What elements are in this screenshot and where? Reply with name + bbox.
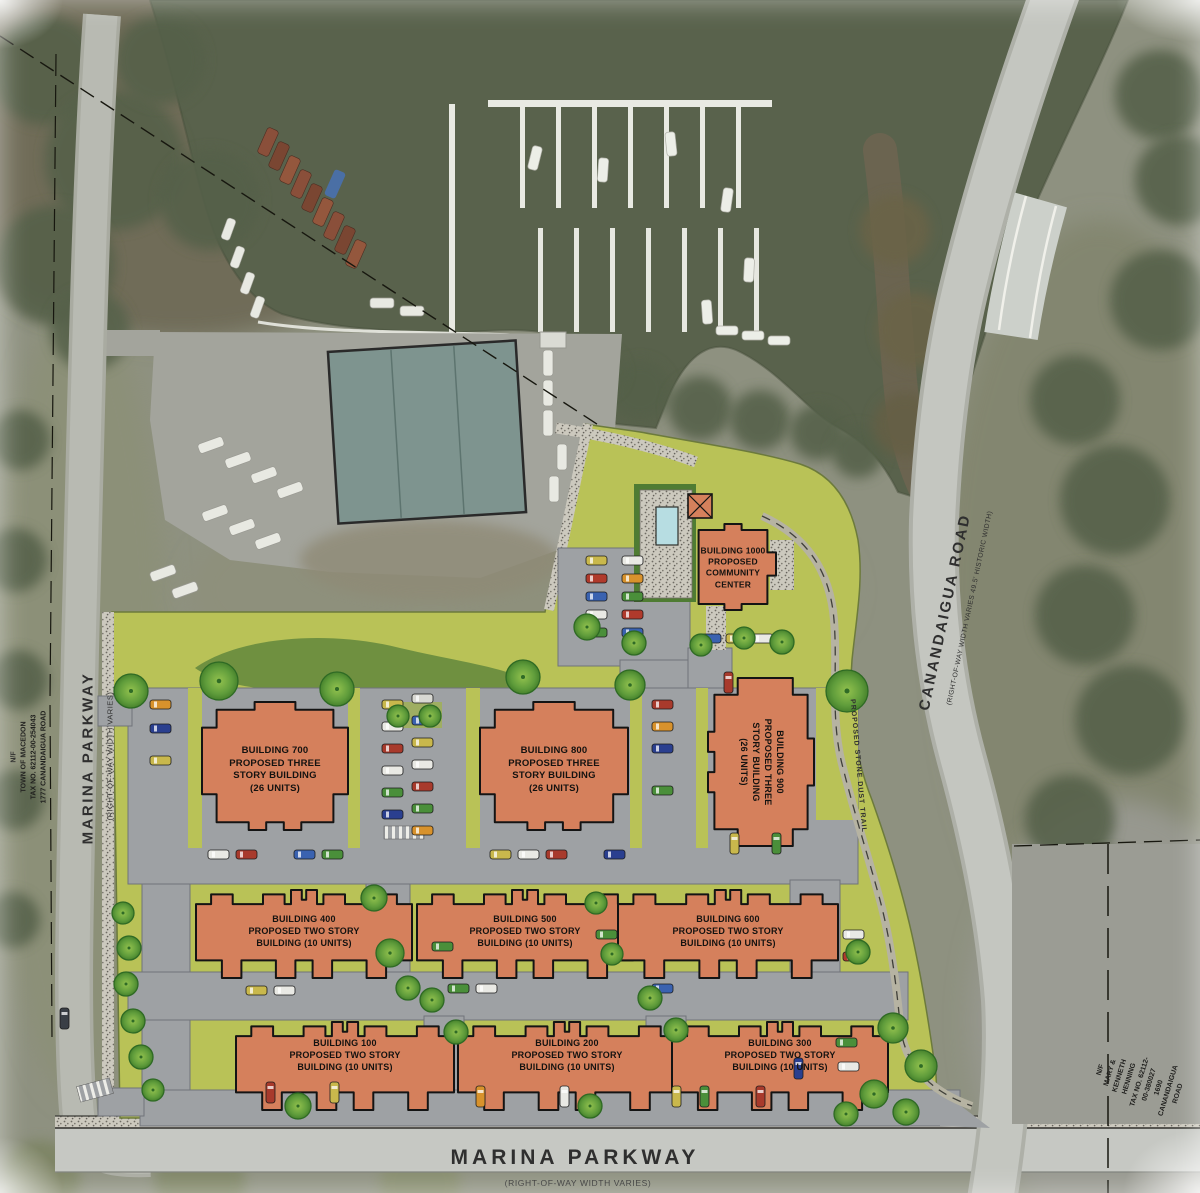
west-curb-wall <box>102 612 114 1118</box>
gravel-area <box>300 520 560 600</box>
east-parcel-field <box>1012 844 1200 1124</box>
shed <box>540 332 566 348</box>
vegetation <box>1060 445 1170 555</box>
parked-car <box>150 724 171 733</box>
parked-car <box>604 850 625 859</box>
vegetation <box>860 195 930 265</box>
vegetation <box>1135 135 1200 225</box>
parked-car <box>60 1008 69 1029</box>
parked-car <box>756 1086 765 1107</box>
parked-car <box>586 592 607 601</box>
building-800 <box>480 702 628 830</box>
parked-car <box>382 810 403 819</box>
bridge-deck <box>1011 200 1041 336</box>
vegetation <box>1115 50 1200 140</box>
swimming-pool <box>656 507 678 545</box>
parked-car <box>622 610 643 619</box>
gazebo <box>688 494 712 518</box>
parked-car <box>322 850 343 859</box>
parked-car <box>150 756 171 765</box>
parked-car <box>622 556 643 565</box>
parked-car <box>652 786 673 795</box>
parked-car <box>794 1058 803 1079</box>
parked-car <box>772 833 781 854</box>
parked-car <box>412 738 433 747</box>
parked-car <box>412 760 433 769</box>
parked-car <box>274 986 295 995</box>
parked-car <box>652 744 673 753</box>
parked-car <box>382 766 403 775</box>
parked-car <box>622 592 643 601</box>
parked-car <box>246 986 267 995</box>
parked-car <box>652 700 673 709</box>
aerial-site-plan-canvas <box>0 0 1200 1193</box>
parked-car <box>838 1062 859 1071</box>
parked-car <box>700 1086 709 1107</box>
parked-car <box>586 556 607 565</box>
parked-car <box>476 984 497 993</box>
parked-car <box>586 574 607 583</box>
parked-car <box>546 850 567 859</box>
vegetation <box>1035 565 1135 665</box>
vegetation <box>668 376 732 440</box>
parked-car <box>294 850 315 859</box>
parked-car <box>382 788 403 797</box>
parked-car <box>208 850 229 859</box>
parked-car <box>412 804 433 813</box>
parked-car <box>266 1082 275 1103</box>
building-1000 <box>699 524 776 610</box>
parked-car <box>432 942 453 951</box>
building-900 <box>708 678 814 846</box>
vegetation <box>730 390 790 450</box>
parked-car <box>412 694 433 703</box>
parked-car <box>596 930 617 939</box>
parked-car <box>476 1086 485 1107</box>
vegetation <box>1030 355 1120 445</box>
parked-car <box>412 782 433 791</box>
parked-car <box>330 1082 339 1103</box>
parked-car <box>382 744 403 753</box>
vegetation <box>160 150 260 250</box>
site-plan-map: MARINA PARKWAY (RIGHT-OF-WAY WIDTH VARIE… <box>0 0 1200 1193</box>
parked-car <box>836 1038 857 1047</box>
vegetation <box>115 15 205 105</box>
parked-car <box>652 722 673 731</box>
building-700 <box>202 702 348 830</box>
parked-car <box>518 850 539 859</box>
parked-car <box>724 672 733 693</box>
parked-car <box>150 700 171 709</box>
parked-car <box>448 984 469 993</box>
parked-car <box>843 930 864 939</box>
parked-car <box>672 1086 681 1107</box>
parked-car <box>490 850 511 859</box>
marina-storage-building <box>328 340 526 523</box>
parked-car <box>236 850 257 859</box>
parked-car <box>730 833 739 854</box>
parked-car <box>560 1086 569 1107</box>
parked-car <box>622 574 643 583</box>
parked-car <box>412 826 433 835</box>
vegetation <box>1075 665 1185 775</box>
